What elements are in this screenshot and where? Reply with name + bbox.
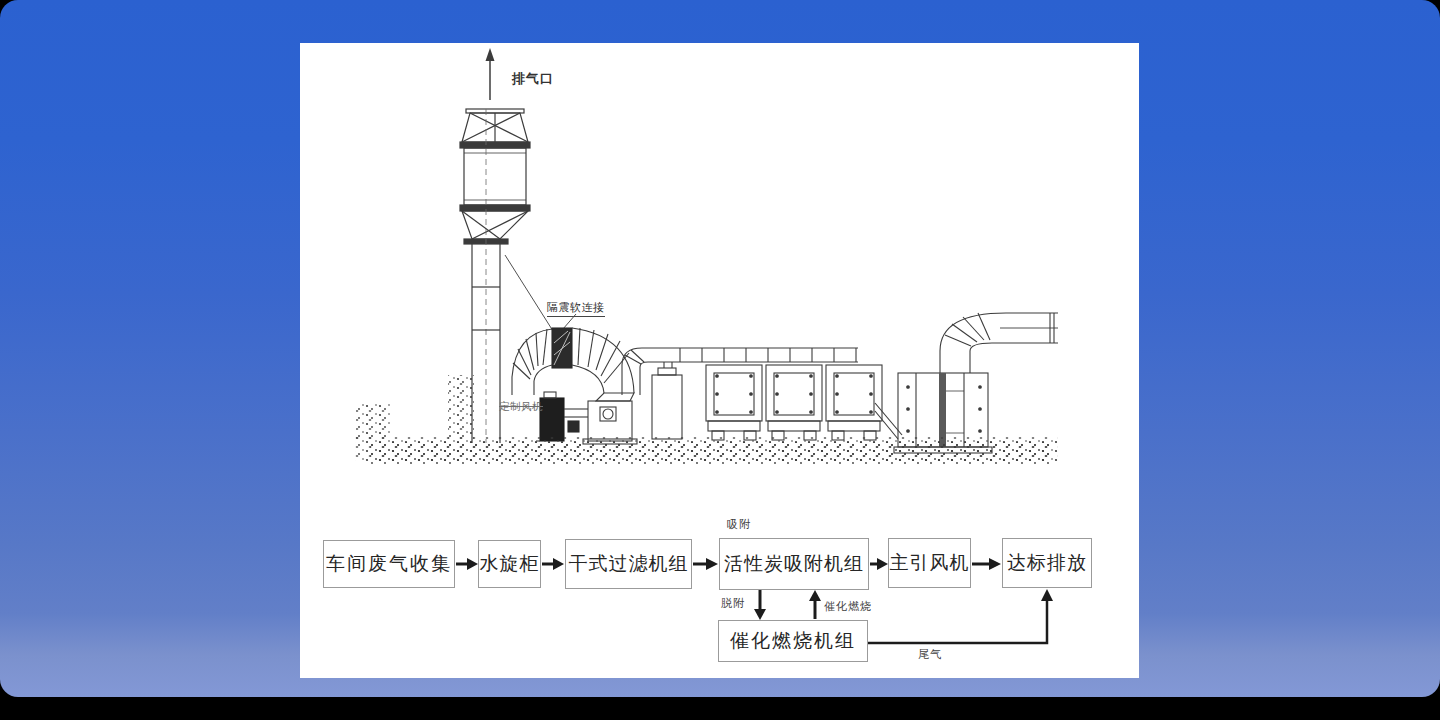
flow-arrow-1 [456,558,478,570]
flow-box-catalytic-combustion-unit: 催化燃烧机组 [718,620,868,662]
custom-fan-label: 定制风机 [499,400,543,414]
flow-arrow-5 [972,558,1001,570]
duct-and-fan-assembly [512,314,660,444]
flow-box-dry-filter-unit: 干式过滤机组 [565,539,692,589]
carbon-unit [894,313,1058,453]
filter-line [652,348,902,440]
flow-box-compliant-discharge: 达标排放 [1002,538,1092,588]
duct-elbow-right [572,328,634,393]
outlet-elbow [940,313,1058,351]
horizontal-duct [660,348,858,362]
screenshot-stage: 排气口 隔震软连接 定制风机 车间废气收集 水旋柜 干式过滤机组 活性炭吸附机组… [0,0,1440,720]
desorption-arrow [754,589,766,620]
filter-box-2 [766,365,822,440]
flow-arrow-3 [693,558,718,570]
tail-gas-label: 尾气 [918,647,942,662]
flow-box-main-fan: 主引风机 [888,538,971,588]
tail-gas-arrow [868,589,1053,643]
catalytic-return-arrow [809,590,821,619]
exhaust-arrow-icon [486,48,495,100]
small-tank [652,362,682,439]
fan-unit [536,392,637,444]
catalytic-combustion-label: 催化燃烧 [824,599,872,614]
flow-box-workshop-exhaust-collection: 车间废气收集 [323,540,455,588]
adsorption-label: 吸附 [727,517,751,532]
filter-box-1 [706,365,762,440]
diagram-panel: 排气口 隔震软连接 定制风机 车间废气收集 水旋柜 干式过滤机组 活性炭吸附机组… [300,43,1139,678]
flow-box-activated-carbon-adsorption-unit: 活性炭吸附机组 [719,538,869,590]
flexible-connector [552,328,572,368]
desorption-label: 脱附 [721,596,745,611]
duct-elbow-left [512,329,552,395]
flow-arrow-4 [870,558,888,570]
exhaust-outlet-label: 排气口 [512,70,554,88]
vibration-isolator-label: 隔震软连接 [547,300,605,317]
filter-box-3 [826,365,882,440]
flow-box-water-spray-cabinet: 水旋柜 [478,540,541,588]
flow-arrow-2 [542,558,564,570]
